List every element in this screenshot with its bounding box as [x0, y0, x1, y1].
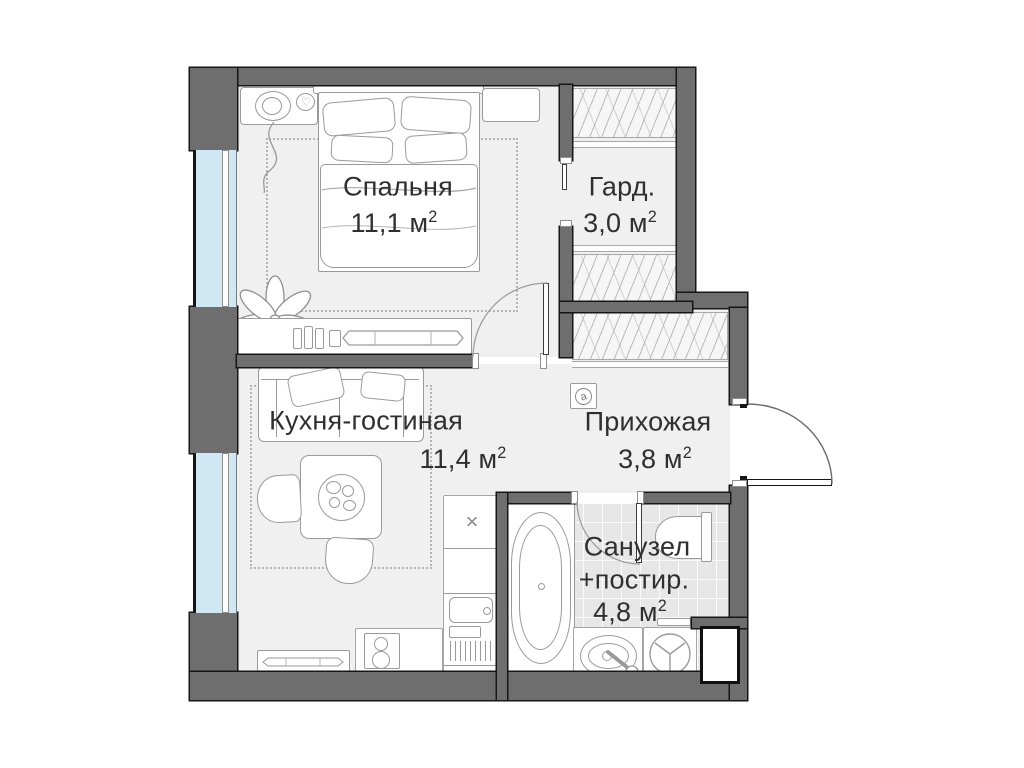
tv-icon: [341, 329, 465, 347]
bathroom-label-line2: +постир.: [579, 567, 689, 594]
wall-left-pillar: [190, 307, 237, 453]
tv-bench: [257, 650, 350, 672]
pillow: [404, 132, 468, 164]
entrance-door-swing: [744, 400, 836, 490]
kitchen-area: 11,4 м2: [419, 445, 506, 473]
kitchen-counter-right: ×: [443, 495, 499, 672]
bedroom-door-swing: [470, 280, 552, 362]
hallway-area: 3,8 м2: [618, 445, 692, 473]
window-frame: [222, 453, 229, 613]
wardrobe-shelf-top: [572, 88, 677, 138]
heart-icon: ♡: [301, 98, 311, 109]
stove: [364, 633, 400, 669]
pillow: [322, 97, 397, 137]
nightstand-right: [482, 88, 540, 122]
electrical-panel-icon: a: [573, 386, 594, 407]
wall-right-upper: [677, 68, 695, 293]
wall-hall-bath-right: [643, 493, 730, 503]
tv-soundbar-icon: [262, 657, 344, 667]
door-jamb: [560, 220, 572, 227]
food-icon: [343, 500, 356, 511]
window-bedroom: [193, 150, 237, 307]
burner-icon: [374, 637, 388, 651]
utility-shaft: [700, 626, 740, 684]
kitchen-sink: [449, 597, 493, 623]
bedroom-dresser: [232, 318, 472, 355]
wall-bedroom-wardrobe-bottom: [560, 227, 572, 357]
cable-squiggle-icon: [252, 120, 302, 195]
bathroom-area: 4,8 м2: [593, 598, 667, 626]
wall-bedroom-wardrobe-top: [560, 85, 572, 160]
wall-wardrobe-closet: [560, 302, 692, 312]
sink-drawer: [449, 626, 481, 638]
wardrobe-shelf-bottom: [572, 254, 677, 302]
window-kitchen: [193, 453, 237, 613]
bathtub-zone: [507, 503, 575, 672]
bedroom-area: 11,1 м2: [350, 209, 437, 237]
bottle-icon: [315, 328, 324, 349]
window-frame: [222, 150, 229, 307]
speaker-icon: [329, 330, 341, 347]
wardrobe-rail-bottom: [572, 245, 677, 252]
washing-machine-icon: [648, 632, 692, 676]
sofa-pillow: [286, 366, 345, 409]
bathroom-label-line1: Санузел: [584, 534, 691, 561]
wardrobe-door-leaf: [562, 164, 567, 190]
wall-right-mid: [730, 308, 747, 404]
burner-icon: [372, 651, 390, 669]
wall-bottom: [190, 672, 747, 700]
floor-plan: ♡: [0, 0, 1024, 768]
counter-divider: [444, 593, 498, 594]
wall-bedroom-kitchen: [237, 355, 473, 367]
food-icon: [342, 485, 354, 497]
wall-hall-bath-left: [497, 493, 575, 503]
faucet-dot-icon: [483, 607, 491, 615]
drain-icon: [538, 583, 545, 590]
dining-table: [300, 455, 382, 539]
toilet-tank: [701, 512, 712, 562]
plate-icon: [318, 474, 365, 521]
wall-top: [190, 68, 695, 85]
wall-kitchen-bath: [497, 493, 507, 700]
food-icon: [326, 481, 341, 494]
electrical-panel-box: a: [570, 383, 597, 409]
wardrobe-rail-top: [572, 141, 677, 148]
counter-divider: [444, 665, 498, 666]
hallway-label: Прихожая: [585, 409, 712, 436]
counter-divider: [444, 548, 498, 549]
bedroom-label: Спальня: [343, 174, 453, 201]
chair-left: [256, 474, 302, 524]
hallway-closet: [572, 312, 728, 360]
pillow: [400, 96, 472, 135]
bottle-icon: [304, 326, 313, 349]
wardrobe-area: 3,0 м2: [583, 209, 657, 237]
decor-plate-inner-icon: [262, 97, 282, 115]
bottle-icon: [293, 328, 302, 349]
sofa-pillow: [360, 371, 407, 402]
dish-drainer-icon: [450, 641, 492, 661]
food-icon: [329, 497, 340, 508]
pillow: [330, 134, 393, 163]
door-jamb: [560, 157, 572, 164]
hallway-closet-rail: [572, 361, 728, 368]
sink-cross-mark: ×: [466, 511, 479, 533]
kitchen-label: Кухня-гостиная: [269, 408, 463, 435]
wardrobe-label: Гард.: [589, 174, 656, 201]
bathtub: [511, 512, 571, 664]
wall-left-top: [190, 68, 237, 150]
kitchen-counter-bottom: [355, 628, 443, 672]
